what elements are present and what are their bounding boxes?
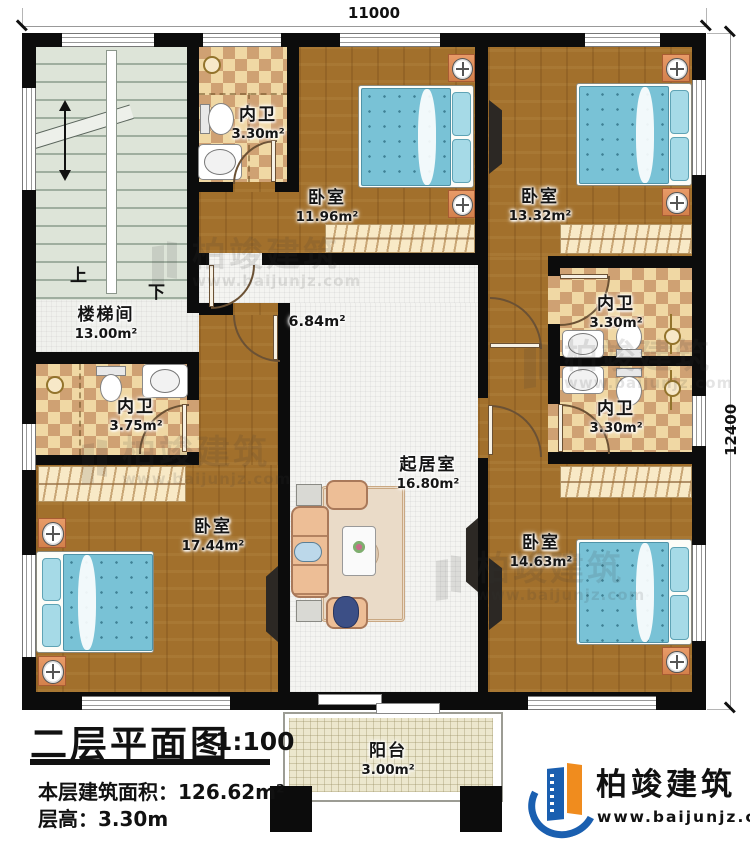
- bed-pillow: [42, 604, 61, 647]
- door-opening: [548, 276, 560, 324]
- arrow-head-icon: [59, 100, 71, 111]
- logo-building-orange-icon: [567, 763, 582, 815]
- bed-mattress: [361, 88, 451, 186]
- room-label-living: 起居室 16.80m²: [397, 456, 460, 492]
- logo-url: www.baijunjz.com: [597, 808, 750, 826]
- room-label-bath-right-upper: 内卫 3.30m²: [589, 295, 642, 331]
- nightstand: [38, 656, 66, 686]
- dimension-line-right: [730, 33, 731, 710]
- tv: [266, 566, 278, 642]
- window: [692, 396, 706, 446]
- person-figure: [294, 542, 322, 562]
- floor-height-label: 层高：: [38, 807, 98, 831]
- bed-pillow: [452, 139, 471, 183]
- bed-mattress: [63, 554, 153, 651]
- door-leaf: [558, 404, 563, 452]
- floor-height-line: 层高：3.30m: [38, 803, 168, 832]
- door-opening: [233, 303, 278, 315]
- door-leaf: [488, 405, 493, 455]
- floor-height-value: 3.30m: [98, 807, 168, 831]
- door-leaf: [271, 140, 276, 182]
- room-label-bedroom-top-mid: 卧室 11.96m²: [296, 189, 359, 225]
- tv: [489, 100, 502, 174]
- room-label-bedroom-top-right: 卧室 13.32m²: [509, 188, 572, 224]
- nightstand: [448, 190, 475, 218]
- balcony-column: [460, 786, 502, 832]
- sink-icon: [568, 333, 598, 355]
- dimension-label-top: 11000: [326, 4, 422, 22]
- window: [528, 696, 656, 710]
- nightstand: [662, 54, 690, 82]
- door-leaf: [560, 274, 608, 279]
- armchair: [326, 480, 368, 510]
- room-label-bath-right-lower: 内卫 3.30m²: [589, 400, 642, 436]
- bed-pillow: [42, 558, 61, 601]
- bed: [576, 539, 692, 645]
- tv: [489, 558, 502, 630]
- nightstand-plant-icon: [42, 660, 64, 683]
- bed-sheet-fold: [636, 87, 654, 183]
- coffee-table-decor: [352, 540, 366, 554]
- window: [692, 80, 706, 175]
- extension-line: [707, 709, 731, 710]
- window: [22, 424, 36, 470]
- dimension-line-top: [22, 26, 707, 27]
- title-underline: [30, 759, 270, 765]
- stair-direction-arrow: [64, 110, 66, 170]
- person-figure: [333, 596, 359, 628]
- logo-text: 柏竣建筑: [596, 768, 736, 802]
- bed-pillow: [670, 137, 689, 181]
- side-table: [296, 484, 322, 506]
- stair-up-label: 上: [70, 261, 87, 286]
- bed-sheet-fold: [636, 543, 654, 642]
- floor-area-label: 本层建筑面积：: [38, 780, 178, 804]
- nightstand-plant-icon: [452, 58, 473, 80]
- sink-icon: [568, 369, 598, 391]
- nightstand-plant-icon: [666, 58, 688, 80]
- dimension-label-right: 12400: [722, 375, 740, 485]
- toilet-icon: [616, 349, 642, 358]
- nightstand-plant-icon: [666, 192, 688, 214]
- room-label-bath-left: 内卫 3.75m²: [109, 398, 162, 434]
- nightstand-plant-icon: [42, 522, 64, 545]
- nightstand: [38, 518, 66, 548]
- window: [203, 33, 281, 47]
- extension-line: [707, 33, 731, 34]
- logo-building-windows-icon: [550, 774, 554, 814]
- stair-stringer: [106, 50, 117, 294]
- tv: [466, 518, 478, 592]
- wardrobe: [560, 466, 692, 498]
- towel-rail-icon: [664, 328, 681, 345]
- bed-sheet-fold: [418, 89, 436, 185]
- door-leaf: [209, 265, 214, 307]
- door-leaf: [182, 404, 187, 452]
- side-table: [296, 600, 322, 622]
- bed: [358, 85, 474, 188]
- shower-partition: [199, 93, 287, 95]
- stair-down-label: 下: [148, 278, 165, 303]
- floor-bedroom-top-mid-entry: [199, 192, 299, 253]
- bed-pillow: [670, 547, 689, 592]
- shower-head-icon: [46, 376, 64, 394]
- nightstand: [662, 188, 690, 216]
- shower-head-icon: [203, 56, 221, 74]
- room-label-hallway: 6.84m²: [288, 314, 345, 331]
- wardrobe: [38, 466, 186, 502]
- door-leaf: [273, 315, 278, 360]
- bed-pillow: [670, 595, 689, 640]
- nightstand-plant-icon: [452, 194, 473, 216]
- wardrobe: [325, 224, 475, 253]
- room-label-bath-top-left: 内卫 3.30m²: [231, 106, 284, 142]
- bed-mattress: [579, 86, 669, 184]
- bed: [576, 83, 692, 186]
- plan-scale: 1:100: [215, 727, 295, 756]
- wall-opening: [187, 313, 199, 352]
- bed-mattress: [579, 542, 669, 643]
- sliding-door-panel: [318, 694, 382, 705]
- sink-icon: [204, 149, 236, 175]
- floor-area-line: 本层建筑面积：126.62m²: [38, 776, 285, 805]
- bed: [36, 551, 154, 653]
- window: [692, 545, 706, 641]
- door-opening: [478, 398, 488, 458]
- window: [22, 88, 36, 190]
- sink-icon: [150, 369, 180, 393]
- window: [62, 33, 154, 47]
- shower-partition: [79, 364, 81, 455]
- room-label-bedroom-bottom-right: 卧室 14.63m²: [510, 534, 573, 570]
- window: [22, 555, 36, 657]
- bed-pillow: [670, 90, 689, 134]
- window: [340, 33, 440, 47]
- wardrobe: [560, 224, 692, 254]
- floor-area-value: 126.62m²: [178, 780, 285, 804]
- door-leaf: [490, 343, 540, 348]
- nightstand-plant-icon: [666, 651, 688, 673]
- nightstand: [662, 647, 690, 675]
- bed-sheet-fold: [78, 555, 96, 650]
- room-label-stairwell: 楼梯间 13.00m²: [75, 306, 138, 342]
- window: [585, 33, 660, 47]
- window: [82, 696, 230, 710]
- room-label-bedroom-bottom-left: 卧室 17.44m²: [182, 518, 245, 554]
- door-opening: [209, 253, 262, 265]
- sliding-door-panel: [376, 703, 440, 714]
- room-label-balcony: 阳台 3.00m²: [361, 742, 414, 778]
- nightstand: [448, 54, 475, 82]
- floor-plan-canvas: 11000 12400 上 下: [0, 0, 750, 844]
- towel-rail-icon: [664, 380, 681, 397]
- toilet-icon: [208, 103, 234, 135]
- arrow-head-icon: [59, 170, 71, 181]
- bed-pillow: [452, 92, 471, 136]
